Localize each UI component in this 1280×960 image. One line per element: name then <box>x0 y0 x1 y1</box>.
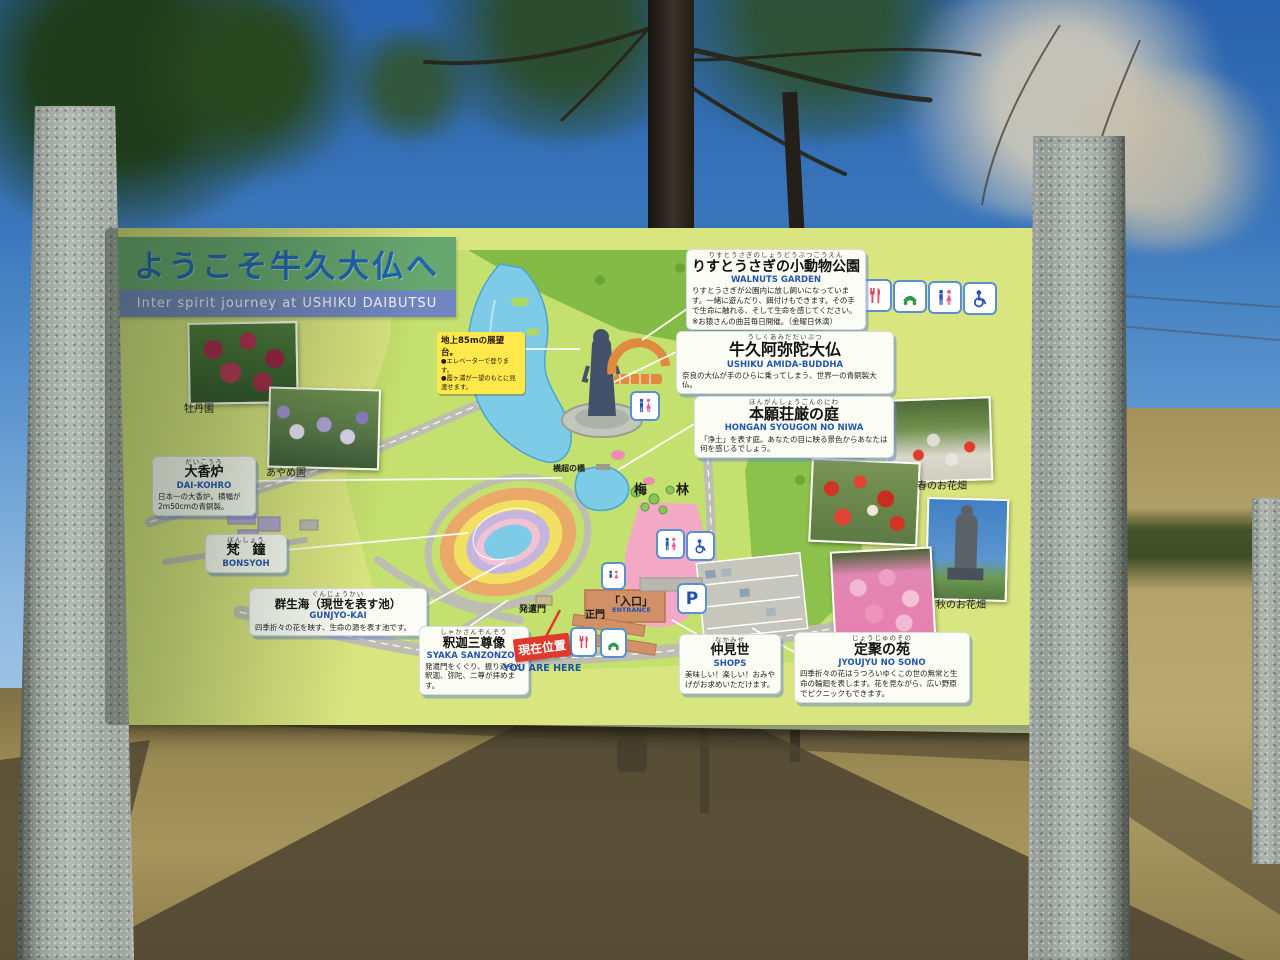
label-title-en: USHIKU AMIDA-BUDDHA <box>682 360 888 370</box>
label-description: 四季折々の花を映す、生命の源を表す池です。 <box>255 623 421 633</box>
restroom-icon <box>601 562 626 590</box>
label-title-en: SHOPS <box>685 659 775 669</box>
label-hongan-syougon-no-niwa: ほんがんしょうごんのにわ 本願荘厳の庭 HONGAN SYOUGON NO NI… <box>694 396 894 458</box>
label-description: りすとうさぎが公園内に放し飼いになっています。一緒に遊んだり、餌付けもできます。… <box>692 286 860 315</box>
label-title-en: SYAKA SANZONZOU <box>425 651 523 661</box>
restaurant-icon <box>570 627 597 657</box>
parking-letter: P <box>686 589 698 609</box>
label-title-jp: 牛久阿弥陀大仏 <box>682 341 888 359</box>
label-description: 四季折々の花はうつろいゆくこの世の無常と生命の輪廻を表します。花を見ながら、広い… <box>800 669 964 698</box>
telephone-icon <box>600 628 627 658</box>
label-title-jp: 群生海（現世を表す池） <box>255 598 421 611</box>
label-title-en: HONGAN SYOUGON NO NIWA <box>700 423 888 433</box>
label-title-jp: りすとうさぎの小動物公園 <box>692 259 860 275</box>
label-walnuts-garden: りすとうさぎのしょうどうぶつこうえん りすとうさぎの小動物公園 WALNUTS … <box>686 249 866 330</box>
label-description: 奈良の大仏が手のひらに乗ってしまう、世界一の青銅製大仏。 <box>682 371 888 391</box>
label-description: 日本一の大香炉。横幅が2m50cmの青銅製。 <box>158 492 250 512</box>
note-bullet: ●エレベーターで登ります。 <box>441 358 521 375</box>
note-heading: 地上85mの展望台。 <box>441 334 521 358</box>
wheelchair-icon <box>686 531 715 561</box>
observation-deck-note: 地上85mの展望台。 ●エレベーターで登ります。 ●霞ヶ浦が一望のもとに見渡せま… <box>437 332 525 394</box>
label-description: 「浄土」を表す庭。あなたの目に映る景色からあなたは何を感じるでしょう。 <box>700 435 888 455</box>
label-title-en: WALNUTS GARDEN <box>692 275 860 285</box>
you-are-here-english: YOU ARE HERE <box>503 663 583 674</box>
label-ushiku-amida-buddha: うしくあみだだいぶつ 牛久阿弥陀大仏 USHIKU AMIDA-BUDDHA 奈… <box>676 331 894 394</box>
label-description: 美味しい！楽しい！おみやげがお求めいただけます。 <box>685 670 775 690</box>
label-title-jp: 本願荘厳の庭 <box>700 406 888 423</box>
label-title-jp: 仲見世 <box>685 644 775 659</box>
label-title-jp: 大香炉 <box>158 466 250 481</box>
restroom-icon <box>656 529 685 559</box>
label-title-en: GUNJYO-KAI <box>255 611 421 621</box>
parking-icon: P <box>677 583 707 614</box>
label-title-en: DAI-KOHRO <box>158 481 250 491</box>
stone-pillar-far-right <box>1252 498 1280 864</box>
label-title-en: BONSYOH <box>211 559 281 569</box>
label-title-jp: 梵 鐘 <box>211 544 281 559</box>
restroom-icon <box>630 391 660 421</box>
label-gunjyo-kai: ぐんじょうかい 群生海（現世を表す池） GUNJYO-KAI 四季折々の花を映す… <box>249 588 427 636</box>
label-bonsyoh: ぼんしょう 梵 鐘 BONSYOH <box>205 534 287 573</box>
label-jyoujyu-no-sono: じょうじゅのその 定聚の苑 JYOUJYU NO SONO 四季折々の花はうつろ… <box>794 632 970 703</box>
label-dai-kohro: だいこうろ 大香炉 DAI-KOHRO 日本一の大香炉。横幅が2m50cmの青銅… <box>152 456 256 516</box>
label-title-jp: 定聚の苑 <box>800 642 964 658</box>
label-title-jp: 釈迦三尊像 <box>425 636 523 650</box>
telephone-icon <box>893 280 927 313</box>
label-title-en: JYOUJYU NO SONO <box>800 658 964 668</box>
tree-trunk <box>648 0 694 238</box>
restroom-icon <box>928 281 962 314</box>
label-nakamise-shops: なかみせ 仲見世 SHOPS 美味しい！楽しい！おみやげがお求めいただけます。 <box>679 634 781 694</box>
label-syaka-sanzonzou: しゃかさんぞんぞう 釈迦三尊像 SYAKA SANZONZOU 発遣門をくぐり、… <box>419 626 529 695</box>
wheelchair-icon <box>963 282 997 315</box>
note-bullet: ●霞ヶ浦が一望のもとに見渡せます。 <box>441 375 521 392</box>
label-note: ※お猿さんの曲芸毎日開催。（金曜日休演） <box>692 317 860 327</box>
